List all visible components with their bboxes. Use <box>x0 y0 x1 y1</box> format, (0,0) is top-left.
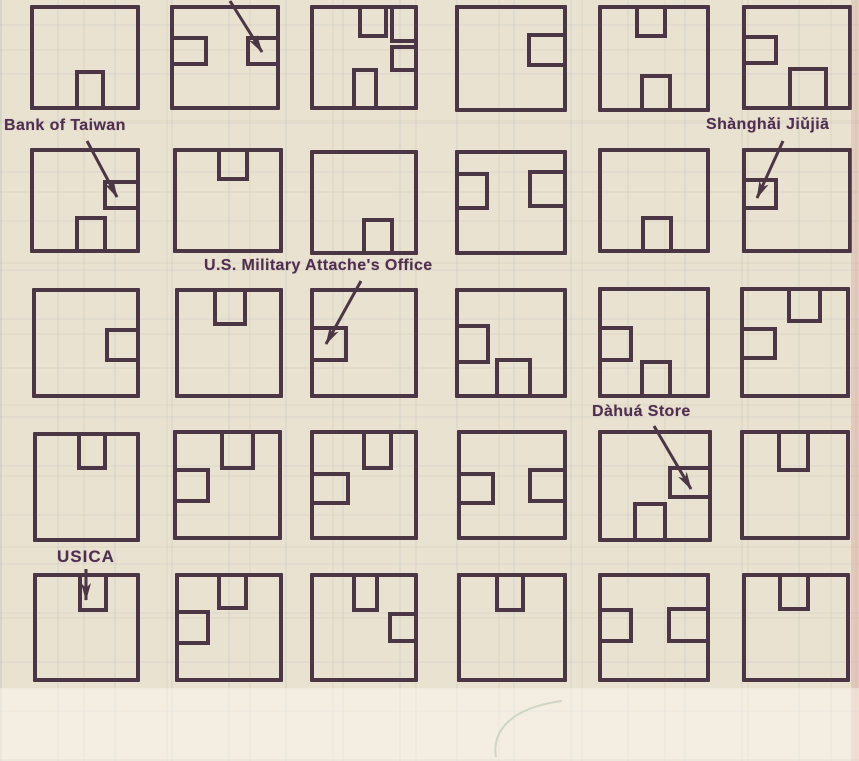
building <box>388 612 418 643</box>
page-bottom-highlight <box>0 688 859 761</box>
building <box>527 33 567 67</box>
building <box>105 328 140 362</box>
building <box>310 472 350 505</box>
pen-mark <box>495 701 562 757</box>
shanghai-jiujia-building <box>742 178 778 210</box>
building <box>217 573 248 610</box>
building <box>175 610 210 645</box>
building <box>598 326 633 362</box>
building <box>173 468 210 503</box>
building <box>640 360 672 398</box>
scan-edge-shadow <box>851 0 859 761</box>
label-bank-of-taiwan: Bank of Taiwan <box>4 117 126 135</box>
building <box>667 607 710 643</box>
label-us-military-attaches-office: U.S. Military Attache's Office <box>204 257 433 275</box>
building <box>455 172 489 210</box>
building <box>742 35 778 65</box>
usica-building <box>78 573 108 612</box>
building <box>787 287 822 323</box>
building <box>633 502 667 542</box>
building <box>455 324 490 364</box>
scanned-map-page: Bank of Taiwan Shànghǎi Jiǔjiā U.S. Mili… <box>0 0 859 761</box>
label-usica: USICA <box>57 547 115 567</box>
building <box>788 67 828 110</box>
label-shanghai-jiujia: Shànghǎi Jiǔjiā <box>706 116 829 134</box>
bank-of-taiwan-building <box>103 180 140 210</box>
building <box>362 218 394 255</box>
building <box>220 430 255 470</box>
building <box>598 608 633 643</box>
building <box>170 36 208 66</box>
building <box>778 573 810 611</box>
building <box>528 170 567 208</box>
building <box>75 216 107 253</box>
building <box>75 70 105 110</box>
building <box>352 68 378 110</box>
label-dahua-store: Dàhuá Store <box>592 403 691 421</box>
building <box>640 74 672 112</box>
unlabeled-arrow-target <box>246 36 280 66</box>
building <box>457 472 495 505</box>
building <box>217 148 249 181</box>
building <box>777 430 810 472</box>
building <box>390 45 418 72</box>
building <box>635 5 667 38</box>
us-military-attaches-office-building <box>310 326 348 362</box>
building <box>495 573 525 612</box>
building <box>641 216 673 253</box>
building <box>390 5 418 43</box>
building <box>358 5 388 38</box>
building <box>352 573 379 612</box>
building <box>362 430 393 470</box>
building <box>740 327 777 360</box>
building <box>528 468 567 503</box>
building <box>213 288 247 326</box>
dahua-store-building <box>668 466 712 499</box>
building <box>77 432 107 470</box>
building <box>495 358 532 398</box>
